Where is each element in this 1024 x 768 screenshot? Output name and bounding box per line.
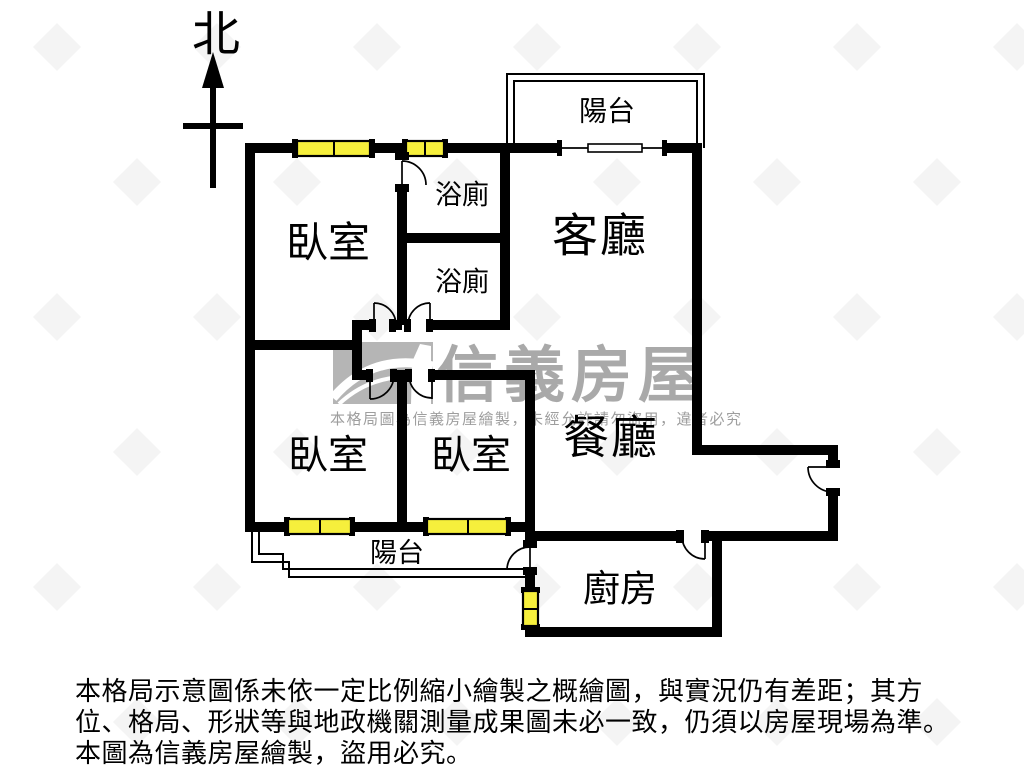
room-label-living: 客廳 xyxy=(552,211,648,262)
sliding-door-living-balcony xyxy=(557,140,667,156)
door-kitchen xyxy=(676,530,709,559)
room-label-bedroom-main: 臥室 xyxy=(286,220,370,267)
window-kitchen xyxy=(521,587,540,630)
north-compass: 北 xyxy=(183,9,243,189)
room-label-balcony-top: 陽台 xyxy=(579,96,635,128)
brand-watermark-notice: 本格局圖為信義房屋繪製，未經允許請勿盜用，違者必究 xyxy=(330,410,743,428)
room-label-kitchen: 廚房 xyxy=(583,569,657,611)
floorplan-page: 信義房屋 本格局圖為信義房屋繪製，未經允許請勿盜用，違者必究 xyxy=(0,0,1024,768)
disclaimer-line-1: 本格局示意圖係未依一定比例縮小繪製之概繪圖，與實況仍有差距；其方 xyxy=(75,676,975,707)
disclaimer-line-3: 本圖為信義房屋繪製，盜用必究。 xyxy=(75,738,975,768)
north-label: 北 xyxy=(192,9,240,62)
room-label-balcony-bottom: 陽台 xyxy=(370,538,424,568)
disclaimer-text: 本格局示意圖係未依一定比例縮小繪製之概繪圖，與實況仍有差距；其方 位、格局、形狀… xyxy=(75,676,975,768)
window-top-left xyxy=(292,139,375,158)
window-bottom-mid xyxy=(423,517,511,536)
room-label-bath1: 浴廁 xyxy=(435,180,489,210)
door-entry xyxy=(808,460,840,496)
window-bottom-left xyxy=(284,517,355,536)
room-label-dining: 餐廳 xyxy=(563,413,659,464)
room-label-bedroom-left: 臥室 xyxy=(288,433,368,478)
floorplan-drawing: 信義房屋 本格局圖為信義房屋繪製，未經允許請勿盜用，違者必究 xyxy=(0,0,1024,768)
door-bath1 xyxy=(395,152,426,192)
disclaimer-line-2: 位、格局、形狀等與地政機關測量成果圖未必一致，仍須以房屋現場為準。 xyxy=(75,707,975,738)
room-label-bedroom-mid: 臥室 xyxy=(431,433,511,478)
room-label-bath2: 浴廁 xyxy=(435,267,489,297)
door-bath2 xyxy=(404,303,433,332)
